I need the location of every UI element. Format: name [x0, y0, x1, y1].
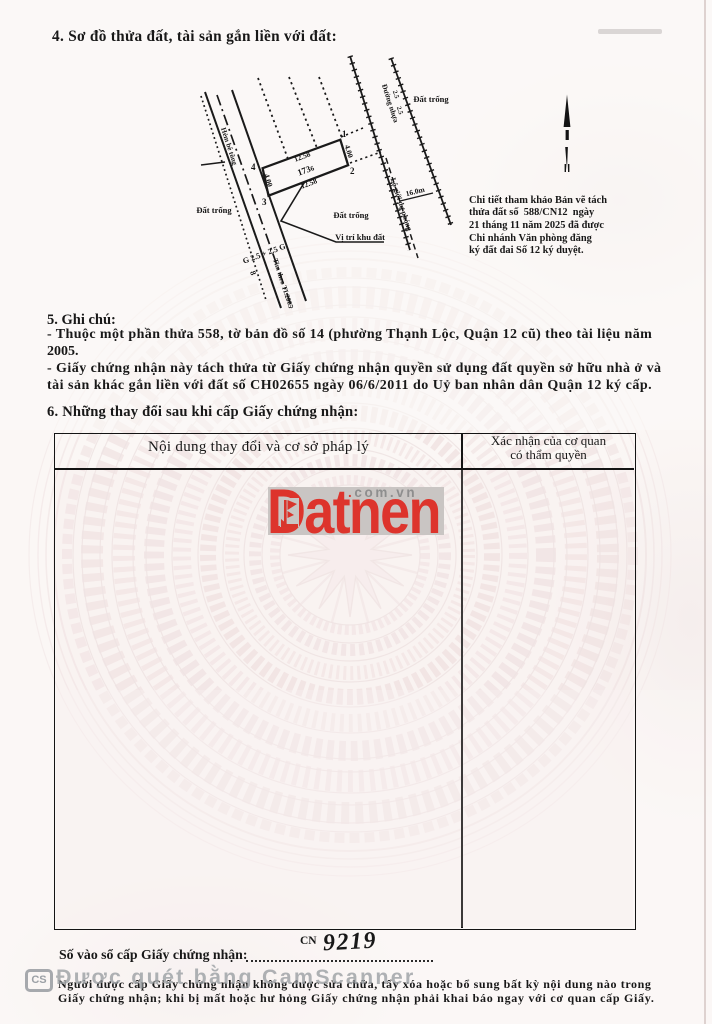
svg-text:3: 3 [262, 197, 267, 207]
svg-text:Tim theo TL2005: Tim theo TL2005 [271, 257, 295, 309]
svg-text:16.0m: 16.0m [405, 185, 427, 199]
svg-text:Đất trống: Đất trống [333, 210, 369, 220]
svg-text:12.58: 12.58 [299, 176, 318, 191]
svg-text:Đất trống: Đất trống [413, 94, 449, 104]
svg-text:Vị trí khu đất: Vị trí khu đất [335, 232, 385, 242]
svg-text:4.00: 4.00 [262, 173, 275, 188]
svg-text:8: 8 [248, 270, 258, 277]
svg-text:2: 2 [350, 166, 355, 176]
svg-text:Đất trống: Đất trống [196, 205, 232, 215]
svg-text:1: 1 [342, 129, 347, 139]
svg-text:12.58: 12.58 [293, 149, 312, 163]
svg-text:1736: 1736 [296, 162, 316, 177]
svg-text:4: 4 [251, 162, 256, 172]
